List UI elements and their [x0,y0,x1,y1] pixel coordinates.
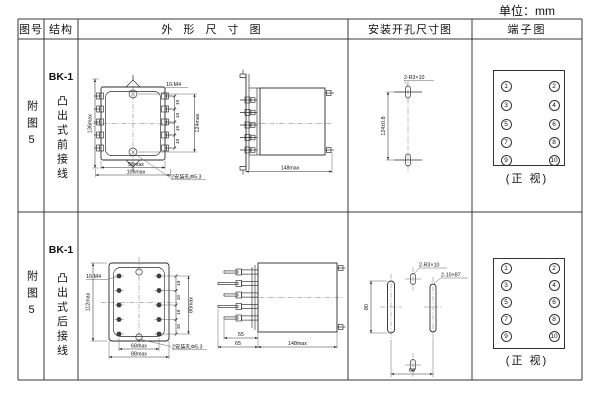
row2-mounting-holes-view: 80 68 2-R3×10 2-10×87 [364,263,468,378]
row1-terminal-diagram: 1 3 5 7 9 2 4 6 8 10 [493,70,565,166]
dim-screw-span: 80max [189,297,195,313]
dim-pitch: 19 [175,100,180,106]
label-slot-spec: 2-R3×10 [404,75,425,81]
row2-terminal-caption: (正 视) [472,352,582,368]
row1-side-terminals [240,90,334,153]
terminal-pin: 9 [501,155,512,166]
terminal-pin: 2 [549,263,560,274]
dim-horizontal-spacing: 68 [409,368,415,374]
row2-fig-no: 附图5 [26,270,37,322]
row1-structure: 凸出式前接线 [56,95,67,182]
column-header-structure: 结构 [44,19,78,39]
terminal-pin: 3 [501,100,512,111]
dim-pitch: 19 [175,113,180,119]
dim-outer-width: 88max [131,351,147,357]
dim-slot-height: 80 [364,304,370,310]
label-mount-hole: 2安装孔Φ5.3 [172,343,202,351]
terminal-pin: 10 [549,331,560,342]
terminal-pin: 9 [501,331,512,342]
row2-model: BK-1 [44,244,78,256]
dim-vertical-spacing: 124±0.8 [381,116,387,135]
unit-label: 单位：mm [472,2,582,19]
terminal-pin: 1 [501,81,512,92]
terminal-pin: 7 [501,137,512,148]
row2-outline-side-view: 55 65 148max [218,263,346,349]
label-mount-hole: 2安装孔Φ5.3 [171,173,201,181]
row1-fig-no: 附图5 [26,100,37,152]
row2-structure: 凸出式后接线 [56,272,67,359]
terminal-pin: 5 [501,297,512,308]
column-header-fig-no: 图号 [18,19,44,39]
row1-terminal-caption: (正 视) [472,170,582,186]
terminal-pin: 3 [501,280,512,291]
terminal-pin: 6 [549,119,560,130]
row1-mounting-holes-view: 124±0.8 2-R3×10 [381,75,434,172]
column-header-outline: 外 形 尺 寸 图 [78,19,348,39]
row1-structure-cell: 凸出式前接线 [44,87,78,189]
dim-pitch: 19 [176,324,181,330]
row2-terminal-diagram: 1 3 5 7 9 2 4 6 8 10 [493,258,565,349]
dim-depth: 148max [281,166,300,172]
terminal-pin: 1 [501,263,512,274]
dim-pitch: 19 [176,309,181,315]
label-screw-spec: 10-M4 [86,274,101,280]
dim-pin-inner: 55 [238,332,244,338]
dim-overall-height: 136max [88,114,94,133]
dim-inner-width: 68max [131,343,147,349]
terminal-pin: 8 [549,314,560,325]
row1-outline-front-view: 136max 19 19 19 19 124max 10-M4 98max [88,75,207,181]
terminal-pin: 4 [549,100,560,111]
dim-pitch: 19 [175,139,180,145]
dim-pitch: 19 [176,280,181,286]
dim-overall-height: 112max [86,292,92,311]
label-screw-spec: 10-M4 [166,82,181,88]
terminal-pin: 5 [501,119,512,130]
row2-outline-front-view: 10-M4 112max 19 19 19 19 80max 68max 8 [86,257,208,359]
terminal-pin: 8 [549,137,560,148]
label-large-slot-spec: 2-10×87 [441,273,461,279]
dim-outer-width: 106max [127,169,146,175]
terminal-pin: 7 [501,314,512,325]
dim-pitch: 19 [175,126,180,132]
label-slot-spec: 2-R3×10 [419,263,440,269]
terminal-pin: 4 [549,280,560,291]
dim-depth: 148max [288,341,307,347]
terminal-pin: 6 [549,297,560,308]
row1-fig-no-cell: 附图5 [18,39,44,212]
row2-structure-cell: 凸出式后接线 [44,258,78,372]
dim-pitch: 19 [176,295,181,301]
column-header-terminal: 端子图 [472,19,582,39]
dim-pin-outer: 65 [235,341,241,347]
dim-screw-span: 124max [195,113,201,132]
terminal-pin: 10 [549,155,560,166]
row1-model: BK-1 [44,71,78,83]
datasheet-page: 136max 19 19 19 19 124max 10-M4 98max [0,0,600,400]
column-header-mounting: 安装开孔尺寸图 [348,19,472,39]
row1-outline-side-view: 148max [240,70,334,175]
dim-inner-width: 98max [128,162,144,168]
row2-fig-no-cell: 附图5 [18,212,44,380]
terminal-pin: 2 [549,81,560,92]
